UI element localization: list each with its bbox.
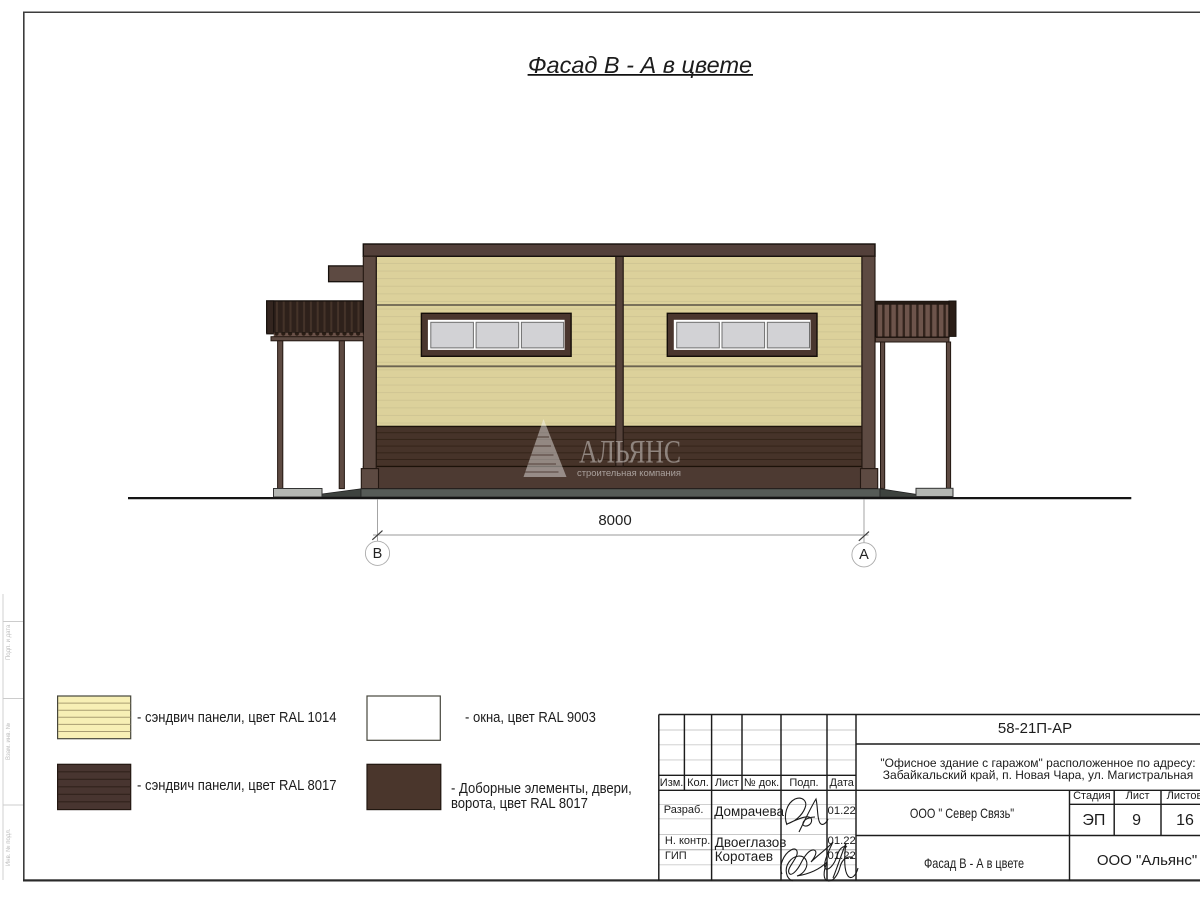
svg-text:строительная компания: строительная компания: [577, 468, 681, 479]
svg-text:АЛЬЯНС: АЛЬЯНС: [579, 435, 681, 471]
